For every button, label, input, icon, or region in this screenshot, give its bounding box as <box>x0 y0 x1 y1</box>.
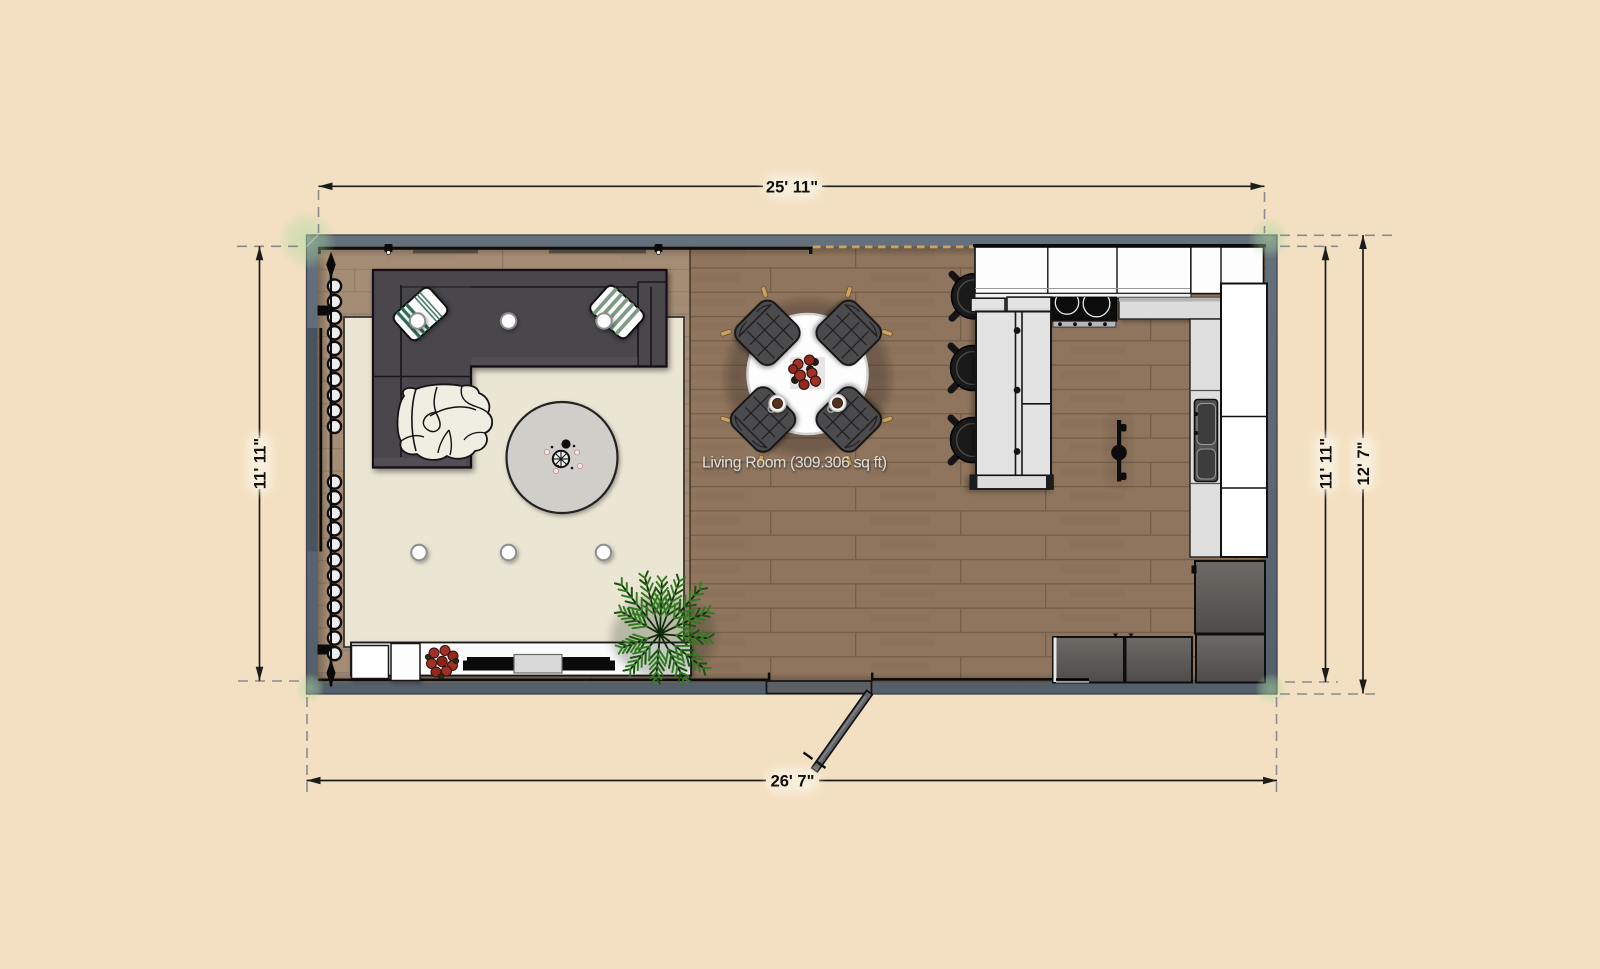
svg-text:11' 11": 11' 11" <box>252 438 270 489</box>
svg-text:26' 7": 26' 7" <box>771 773 815 791</box>
svg-text:25' 11": 25' 11" <box>766 178 818 196</box>
svg-text:11' 11": 11' 11" <box>1318 438 1336 489</box>
svg-text:Living Room (309.306 sq ft): Living Room (309.306 sq ft) <box>702 455 887 472</box>
svg-text:12' 7": 12' 7" <box>1355 442 1373 486</box>
